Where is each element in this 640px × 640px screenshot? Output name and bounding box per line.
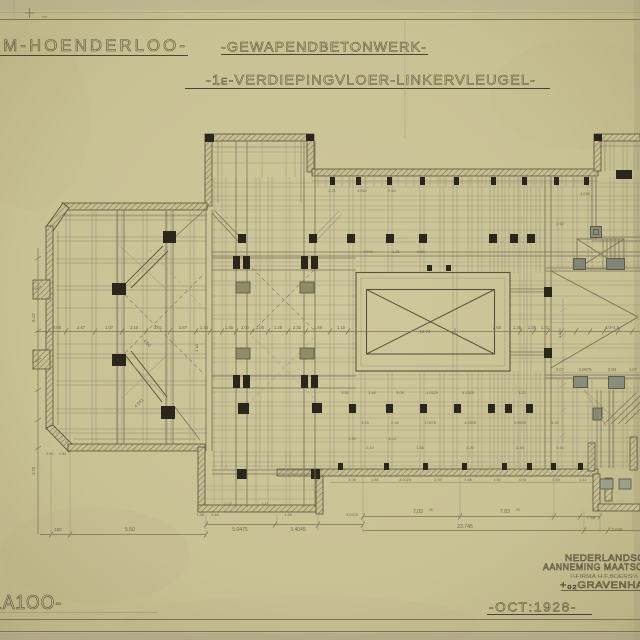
svg-text:1.08: 1.08 (348, 478, 355, 482)
svg-text:3.4045: 3.4045 (290, 527, 306, 533)
svg-text:2.02: 2.02 (224, 502, 231, 506)
svg-text:2.10: 2.10 (366, 446, 373, 450)
svg-text:1.73: 1.73 (31, 466, 36, 475)
svg-text:4.44: 4.44 (556, 446, 563, 450)
svg-text:1.41: 1.41 (59, 452, 66, 456)
svg-text:3.05: 3.05 (396, 391, 403, 395)
svg-text:1.07: 1.07 (629, 367, 638, 372)
svg-text:9.12: 9.12 (31, 313, 36, 322)
svg-text:4.0325: 4.0325 (464, 421, 476, 425)
svg-text:1.46: 1.46 (416, 446, 423, 450)
svg-text:-1E-VERDIEPINGVLOER-LINKERVLEU: -1E-VERDIEPINGVLOER-LINKERVLEUGEL- (206, 72, 536, 88)
svg-text:2.44: 2.44 (211, 513, 218, 517)
svg-text:2.60: 2.60 (493, 325, 502, 330)
svg-text:4.045: 4.045 (357, 189, 367, 193)
svg-text:1.07: 1.07 (105, 325, 114, 330)
svg-text:2.84: 2.84 (552, 478, 559, 482)
svg-text:2.69: 2.69 (434, 478, 441, 482)
svg-text:2.00: 2.00 (241, 325, 250, 330)
svg-text:1.50: 1.50 (493, 478, 500, 482)
svg-text:150: 150 (54, 527, 62, 532)
svg-text:23.745: 23.745 (457, 524, 473, 530)
svg-text:1.85: 1.85 (225, 325, 234, 330)
svg-text:1.44: 1.44 (200, 325, 209, 330)
svg-text:1.12: 1.12 (579, 478, 586, 482)
svg-text:1.49: 1.49 (314, 325, 323, 330)
svg-text:1.28: 1.28 (274, 325, 283, 330)
svg-text:3.01: 3.01 (154, 325, 163, 330)
svg-text:1.81: 1.81 (371, 478, 378, 482)
svg-text:5.0475: 5.0475 (232, 527, 248, 533)
svg-text:7.65: 7.65 (587, 515, 596, 520)
svg-text:1.66: 1.66 (284, 513, 291, 517)
svg-text:3.20: 3.20 (551, 421, 558, 425)
svg-text:25: 25 (516, 508, 520, 512)
svg-text:7.03: 7.03 (413, 509, 423, 515)
svg-text:2.32: 2.32 (293, 325, 302, 330)
svg-text:+₀₂GRAVENHA: +₀₂GRAVENHA (560, 580, 640, 590)
svg-text:3.0375: 3.0375 (346, 513, 358, 517)
svg-text:1.21: 1.21 (328, 189, 335, 193)
svg-text:UM-HOENDERLOO-: UM-HOENDERLOO- (0, 37, 188, 55)
svg-text:AANNEMING MAATSC: AANNEMING MAATSC (543, 562, 640, 572)
svg-text:4.045: 4.045 (580, 192, 590, 196)
svg-text:2.46: 2.46 (391, 421, 398, 425)
svg-text:2.60: 2.60 (388, 189, 395, 193)
svg-text:3.20: 3.20 (361, 421, 368, 425)
svg-text:4.0+4.5: 4.0+4.5 (605, 325, 620, 330)
svg-text:1.01: 1.01 (541, 325, 550, 330)
svg-text:1.00: 1.00 (256, 325, 265, 330)
svg-text:1.11: 1.11 (261, 502, 268, 506)
svg-text:3.2025: 3.2025 (399, 478, 411, 482)
svg-text:3.045: 3.045 (611, 527, 623, 532)
svg-text:-OСТ:1928-: -OСТ:1928- (489, 600, 577, 615)
svg-text:3.0675: 3.0675 (579, 367, 592, 372)
svg-text:1.10: 1.10 (337, 325, 346, 330)
svg-text:2.60: 2.60 (417, 250, 424, 254)
svg-text:4.68: 4.68 (464, 478, 471, 482)
svg-text:2.9925: 2.9925 (514, 421, 526, 425)
svg-text:3.30: 3.30 (341, 391, 348, 395)
svg-text:2.87: 2.87 (179, 325, 188, 330)
svg-text:3.20: 3.20 (466, 446, 473, 450)
svg-text:4.0325: 4.0325 (426, 391, 438, 395)
svg-text:1.90: 1.90 (348, 437, 355, 441)
svg-text:1A1OO-: 1A1OO- (0, 592, 62, 614)
svg-text:3.46: 3.46 (368, 391, 375, 395)
svg-text:4.045: 4.045 (558, 328, 562, 338)
svg-text:2.47: 2.47 (77, 325, 86, 330)
svg-text:4.045: 4.045 (363, 250, 373, 254)
svg-text:3.20: 3.20 (518, 391, 525, 395)
svg-text:1.98: 1.98 (196, 513, 203, 517)
svg-text:2.84: 2.84 (608, 367, 617, 372)
svg-text:1.35: 1.35 (528, 325, 537, 330)
svg-text:3.18: 3.18 (194, 343, 199, 352)
svg-text:1.21: 1.21 (392, 250, 399, 254)
svg-text:1.35: 1.35 (513, 325, 522, 330)
svg-text:0.51: 0.51 (519, 478, 526, 482)
svg-text:4.85: 4.85 (53, 325, 62, 330)
svg-text:2.44: 2.44 (516, 446, 523, 450)
svg-text:4.04: 4.04 (388, 437, 395, 441)
svg-text:25: 25 (429, 508, 433, 512)
svg-text:5.50: 5.50 (125, 527, 135, 533)
svg-text:2.07: 2.07 (556, 367, 565, 372)
svg-text:1.0575: 1.0575 (424, 421, 436, 425)
svg-text:7.83: 7.83 (500, 509, 510, 515)
svg-text:¼FIRMA H.F.BOERS½: ¼FIRMA H.F.BOERS½ (570, 573, 638, 580)
svg-text:-GEWAPENDBETONWERK-: -GEWAPENDBETONWERK- (221, 40, 427, 55)
svg-text:2.62: 2.62 (556, 222, 563, 226)
svg-text:4.0325: 4.0325 (462, 391, 474, 395)
svg-text:3.10: 3.10 (130, 325, 139, 330)
svg-text:2.99: 2.99 (46, 452, 53, 456)
